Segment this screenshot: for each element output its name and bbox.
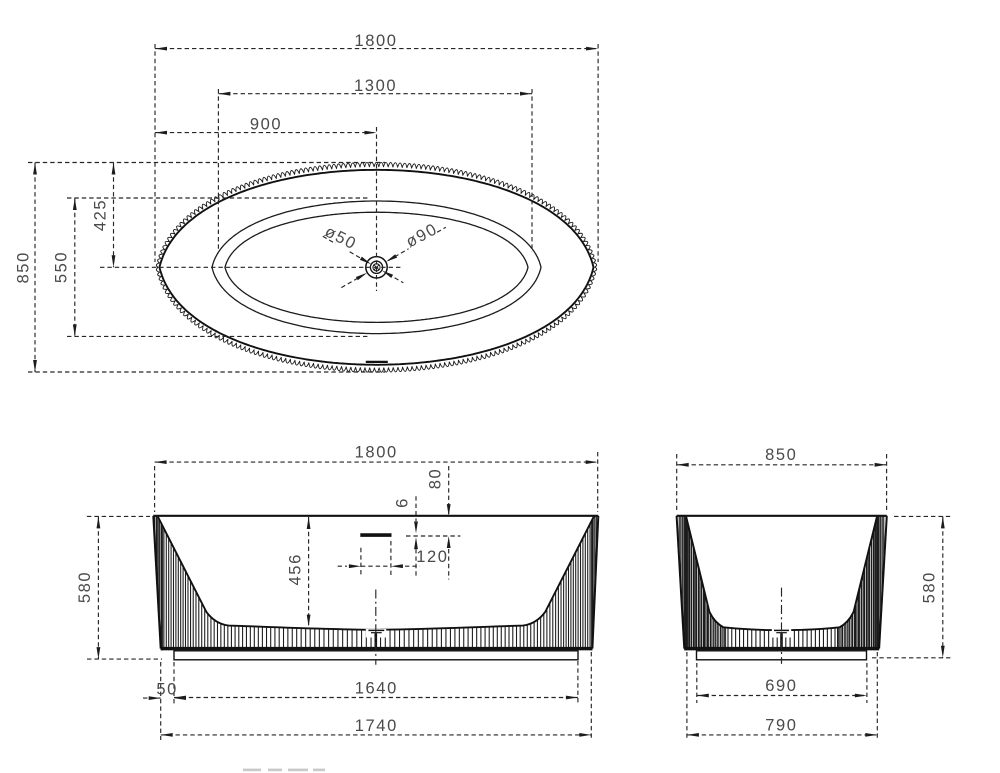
svg-text:550: 550 <box>53 251 71 283</box>
svg-text:900: 900 <box>250 116 282 134</box>
svg-text:850: 850 <box>15 251 33 283</box>
svg-text:580: 580 <box>76 571 94 603</box>
svg-text:6: 6 <box>394 497 412 508</box>
svg-text:690: 690 <box>765 677 797 695</box>
svg-text:1640: 1640 <box>355 680 398 698</box>
svg-text:1800: 1800 <box>354 32 397 50</box>
svg-text:1800: 1800 <box>355 444 398 462</box>
svg-text:456: 456 <box>286 553 304 585</box>
svg-text:80: 80 <box>427 468 445 490</box>
svg-text:1300: 1300 <box>354 77 397 95</box>
svg-text:790: 790 <box>765 716 797 734</box>
svg-text:120: 120 <box>416 548 448 566</box>
svg-text:425: 425 <box>92 199 110 231</box>
svg-text:1740: 1740 <box>355 717 398 735</box>
svg-text:50: 50 <box>156 680 178 698</box>
svg-text:850: 850 <box>765 446 797 464</box>
svg-text:580: 580 <box>921 571 939 603</box>
